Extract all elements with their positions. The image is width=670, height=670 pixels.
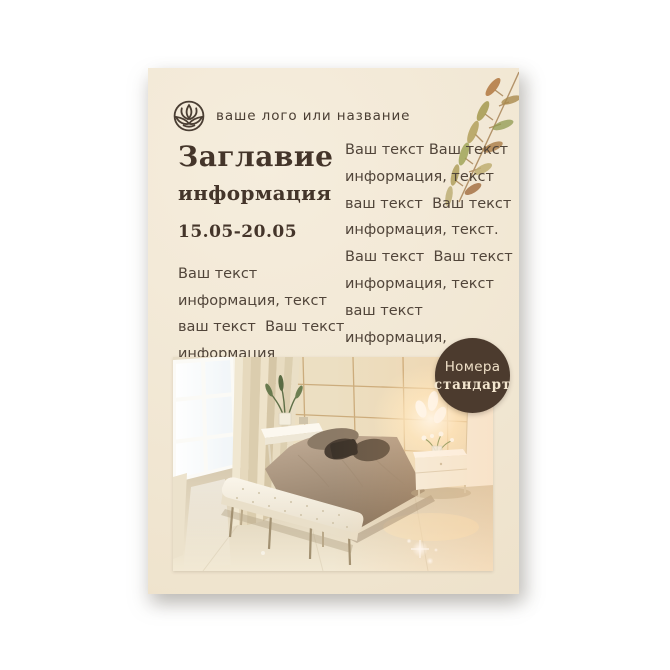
- logo-group: ваше лого или название: [171, 98, 410, 134]
- rooms-badge: Номера стандарт: [435, 338, 510, 413]
- body-line: информация, текст: [178, 288, 343, 315]
- body-line: Ваш текст Ваш текст: [345, 137, 505, 164]
- body-line: ваш текст Ваш текст: [178, 314, 343, 341]
- badge-line2: стандарт: [434, 377, 511, 393]
- page-background: { "flyer": { "logo": { "label": "ваше ло…: [0, 0, 670, 670]
- body-line: информация, текст: [345, 164, 505, 191]
- left-column: Заглавие информация 15.05-20.05 Ваш текс…: [178, 142, 343, 368]
- badge-line1: Номера: [445, 359, 501, 375]
- body-line: ваш текст: [345, 298, 505, 325]
- title-line1: Заглавие: [178, 142, 343, 173]
- date-range: 15.05-20.05: [178, 222, 343, 242]
- logo-label: ваше лого или название: [216, 108, 410, 124]
- body-line: ваш текст Ваш текст: [345, 191, 505, 218]
- right-column: Ваш текст Ваш текст информация, текст ва…: [345, 137, 505, 351]
- lotus-circle-icon: [171, 98, 207, 134]
- body-line: Ваш текст Ваш текст: [345, 244, 505, 271]
- body-line: Ваш текст: [178, 261, 343, 288]
- left-text-block: Ваш текст информация, текст ваш текст Ва…: [178, 261, 343, 368]
- flyer-card: ваше лого или название Заглавие и: [148, 68, 519, 594]
- body-line: информация, текст: [345, 271, 505, 298]
- title-line2: информация: [178, 181, 343, 205]
- body-line: информация, текст.: [345, 217, 505, 244]
